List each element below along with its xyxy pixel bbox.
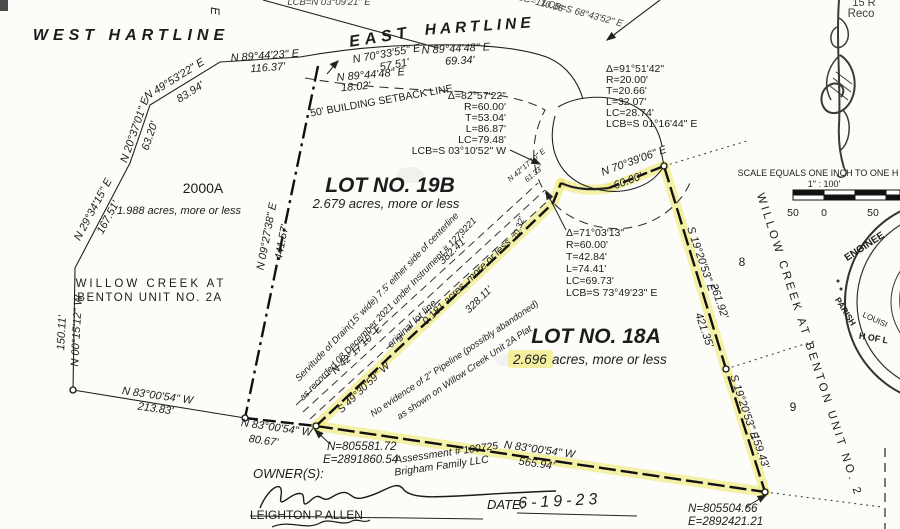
owner-name: LEIGHTON P ALLEN: [250, 508, 363, 522]
curve-delta: Δ=71°03'13": [566, 227, 624, 239]
street-name-partial: E: [208, 7, 222, 16]
arrowhead: [758, 495, 766, 502]
ornament-curl: [831, 18, 848, 48]
curve-chord-bearing: LCB=S 73°49'23" E: [566, 287, 657, 299]
lot-2000a-title: 2000A: [183, 180, 224, 196]
corner-point: [70, 387, 76, 393]
corner-point: [723, 366, 729, 372]
corner-point: [313, 423, 319, 429]
tie-line-1: [664, 140, 750, 166]
subdivision-left-name: WILLOW CREEK AT: [76, 278, 227, 290]
scale-segment: [824, 190, 855, 195]
lot-18a-area-suffix: acres, more or less: [552, 352, 667, 367]
distance-label: 18.02': [340, 80, 371, 95]
north-arrow-ornament: [821, 0, 854, 177]
street-name-hartline: HARTLINE: [424, 14, 535, 39]
distance-label: 441.57': [273, 223, 292, 261]
scale-segment: [824, 195, 855, 200]
lot-number-9: 9: [790, 400, 797, 414]
scale-ratio: 1" : 100': [808, 179, 841, 189]
scale-segment: [855, 195, 886, 200]
curve-chord-bearing: LCB=S 01°16'44" E: [606, 118, 697, 130]
curve-chord: LC=69.73': [566, 275, 614, 287]
scan-blot: [0, 0, 8, 11]
partial-curve-text: LCB=S 68°43'52" E: [541, 0, 624, 30]
lot-number-8: 8: [739, 255, 746, 269]
scale-title: SCALE EQUALS ONE INCH TO ONE H: [738, 168, 899, 178]
curve-table-1: Δ=82°57'22" R=60.00' T=53.04' L=86.87' L…: [412, 90, 507, 157]
date-line: [517, 513, 637, 516]
lot-18a-area-value: 2.696: [512, 352, 547, 367]
curve-radius: R=60.00': [566, 239, 608, 251]
arrowhead: [331, 61, 339, 68]
seal-text: LOUISI: [861, 310, 889, 329]
plat-document: WEST HARTLINE EAST HARTLINE E LCB=N 03°0…: [0, 0, 900, 529]
lot-2000a-area: 1.988 acres, more or less: [117, 205, 242, 217]
subdivision-right-name: WILLOW CREEK AT BENTON UNIT NO. 2: [754, 192, 864, 499]
curve-chord-bearing: LCB=S 03°10'52" W: [412, 145, 506, 157]
sliver-area-label: 0.181 acres, more or less: [420, 236, 514, 327]
partial-curve-text: LCB=N 03°09'21" E: [287, 0, 371, 8]
corner-point: [661, 163, 667, 169]
scale-segment: [793, 195, 824, 200]
servitude-note: Servitude of Drain(15' wide) 7.5' either…: [293, 211, 460, 384]
scale-tick-label: 50: [787, 207, 799, 219]
lot-19b-title: LOT NO. 19B: [325, 174, 455, 197]
seal-text: ENGINEE: [843, 230, 887, 264]
engineer-seal: ENGINEE PARISH LOUISI H OF L: [833, 200, 900, 404]
distance-label: 80.67': [248, 433, 280, 449]
scale-segment: [886, 195, 900, 200]
scale-segment: [793, 190, 824, 195]
corner-partial-text: Reco: [848, 8, 875, 20]
seal-center-ring: [891, 246, 900, 358]
curve-table-2: Δ=91°51'42" R=20.00' T=20.66' L=32.07' L…: [606, 63, 697, 130]
curve-tangent: T=42.84': [566, 251, 607, 263]
distance-label: 116.37': [250, 61, 287, 75]
bearing-label: N 09°27'38" E: [255, 201, 280, 271]
subdivision-left-name: BENTON UNIT NO. 2A: [77, 292, 222, 304]
seal-text: PARISH: [833, 295, 858, 327]
lot-18a-title: LOT NO. 18A: [531, 325, 661, 348]
coordinate-north: N=805504.66: [688, 503, 758, 515]
scale-segment: [886, 190, 900, 195]
date-value-handwritten: 6-19-23: [518, 491, 602, 512]
scale-tick-label: 0: [821, 207, 827, 219]
curve-table-3: Δ=71°03'13" R=60.00' T=42.84' L=74.41' L…: [566, 227, 657, 299]
ornament-flourish: [841, 110, 849, 150]
scale-tick-label: 50: [867, 207, 879, 219]
distance-label: 69.34': [445, 54, 476, 68]
east-boundary: [664, 166, 765, 492]
arrowhead: [607, 33, 615, 40]
owner-label: OWNER(S):: [253, 466, 324, 481]
street-name-west-hartline: WEST HARTLINE: [33, 27, 229, 44]
tie-line-2: [726, 341, 814, 369]
distance-label: 150.11': [55, 314, 69, 350]
scale-segment: [855, 190, 886, 195]
coordinate-north: N=805581.72: [327, 441, 397, 453]
setback-note: 50' BUILDING SETBACK LINE: [309, 83, 453, 120]
curve-length: L=74.41': [566, 263, 606, 275]
seal-text: H OF L: [858, 331, 889, 346]
bearing-label: N 00°15'12" W: [69, 293, 85, 367]
corner-point: [762, 489, 768, 495]
lot-19b-area: 2.679 acres, more or less: [312, 196, 460, 211]
seal-dot: [840, 288, 843, 291]
seal-dot: [837, 280, 840, 283]
coordinate-east: E=2892421.21: [688, 516, 763, 528]
coordinate-east: E=2891860.54: [323, 454, 398, 466]
